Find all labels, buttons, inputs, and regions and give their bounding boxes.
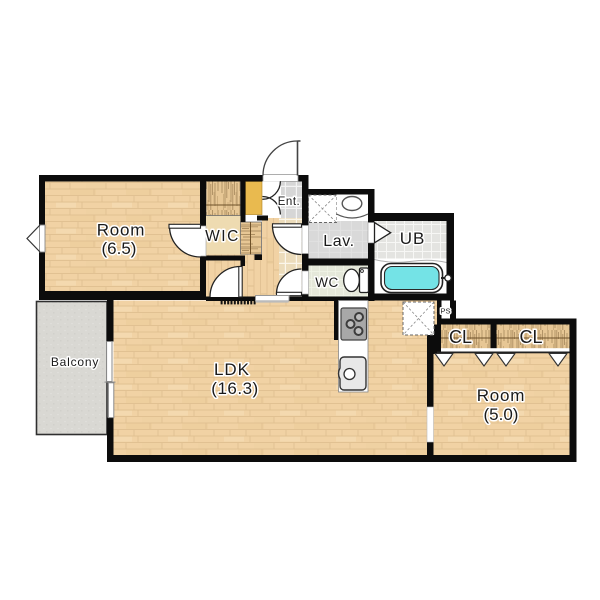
svg-text:CL: CL — [449, 327, 472, 347]
svg-text:Ent.: Ent. — [278, 196, 300, 208]
svg-text:(5.0): (5.0) — [484, 405, 519, 424]
svg-text:WC: WC — [315, 275, 339, 290]
svg-text:Room: Room — [97, 221, 146, 240]
svg-text:PS: PS — [440, 307, 450, 316]
svg-text:Balcony: Balcony — [51, 355, 99, 369]
svg-text:(16.3): (16.3) — [211, 379, 258, 398]
svg-text:Room: Room — [477, 386, 526, 405]
svg-text:CL: CL — [519, 327, 542, 347]
svg-text:UB: UB — [400, 229, 426, 248]
svg-text:LDK: LDK — [214, 360, 250, 379]
svg-text:(6.5): (6.5) — [102, 239, 137, 258]
svg-text:WIC: WIC — [205, 228, 240, 245]
svg-text:Lav.: Lav. — [323, 233, 354, 250]
